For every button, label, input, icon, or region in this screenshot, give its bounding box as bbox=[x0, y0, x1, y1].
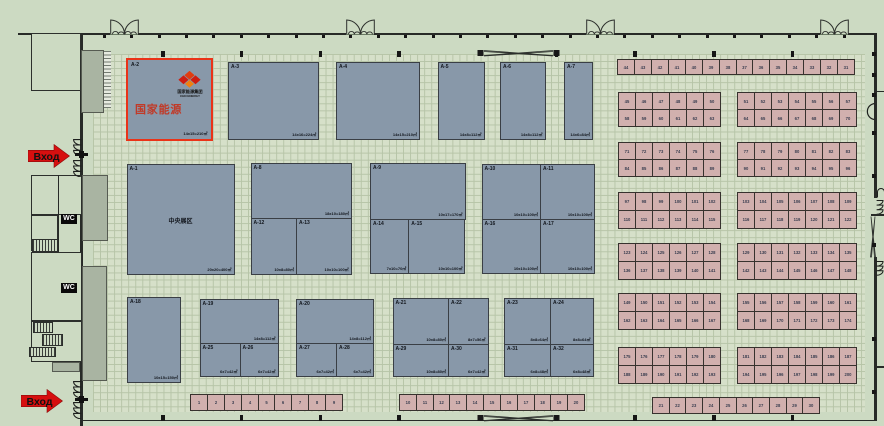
svg-text:Вход: Вход bbox=[27, 396, 53, 408]
svg-text:Вход: Вход bbox=[34, 151, 60, 163]
